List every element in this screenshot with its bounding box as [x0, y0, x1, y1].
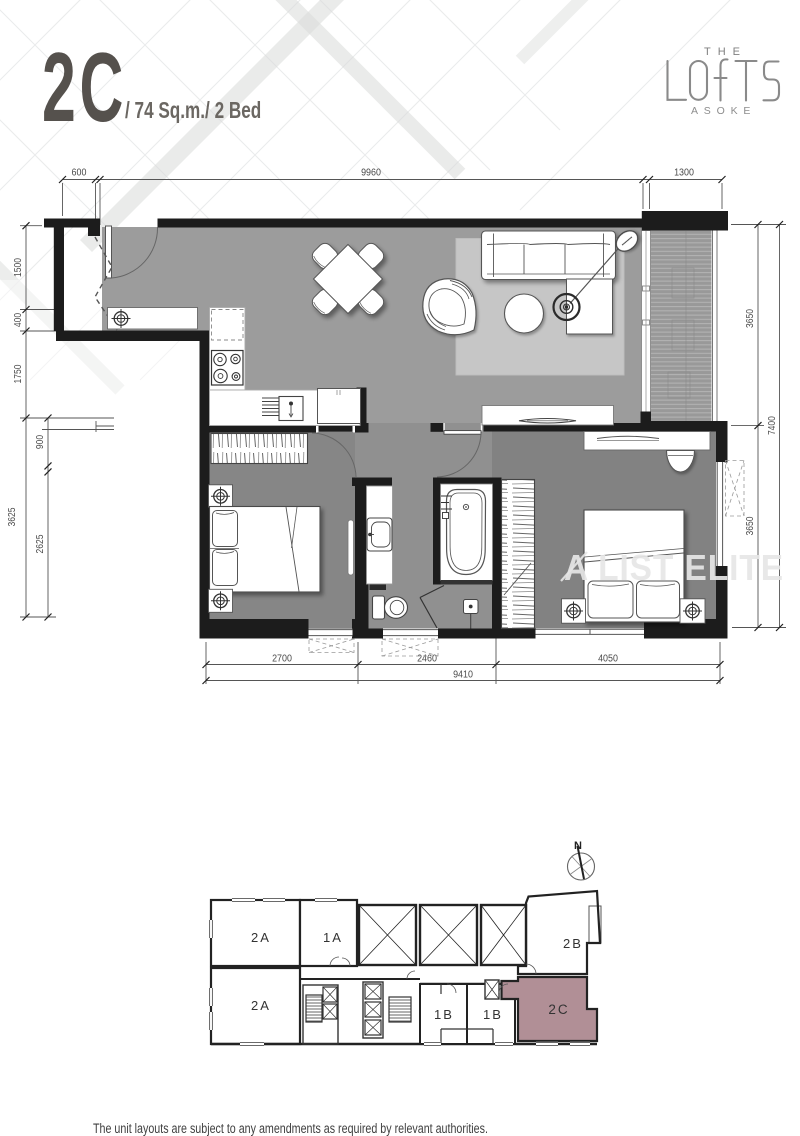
svg-text:2700: 2700 [272, 653, 292, 665]
svg-text:N: N [574, 840, 582, 852]
svg-text:A LIST ELITE: A LIST ELITE [564, 549, 784, 588]
svg-text:2B: 2B [563, 936, 583, 951]
svg-text:4050: 4050 [598, 653, 618, 665]
svg-text:1B: 1B [434, 1007, 454, 1022]
svg-text:1750: 1750 [12, 365, 23, 384]
svg-text:3625: 3625 [6, 508, 17, 527]
svg-text:9410: 9410 [453, 669, 473, 681]
svg-text:9960: 9960 [361, 167, 381, 179]
svg-text:/ 74 Sq.m./ 2 Bed: / 74 Sq.m./ 2 Bed [125, 97, 261, 123]
svg-text:2A: 2A [251, 998, 271, 1013]
svg-text:2625: 2625 [34, 535, 45, 554]
svg-text:2460: 2460 [417, 653, 437, 665]
svg-text:1B: 1B [483, 1007, 503, 1022]
svg-text:THE: THE [704, 46, 747, 58]
svg-text:400: 400 [12, 313, 23, 327]
svg-text:1500: 1500 [12, 258, 23, 277]
svg-text:2C: 2C [42, 33, 127, 142]
svg-text:1A: 1A [323, 930, 343, 945]
svg-text:3650: 3650 [744, 309, 755, 328]
svg-text:900: 900 [34, 435, 45, 449]
svg-text:7400: 7400 [766, 416, 777, 435]
svg-text:2A: 2A [251, 930, 271, 945]
svg-text:600: 600 [72, 167, 87, 179]
svg-text:ASOKE: ASOKE [691, 105, 756, 117]
svg-text:The unit layouts are subject t: The unit layouts are subject to any amen… [93, 1121, 488, 1136]
svg-text:1300: 1300 [674, 167, 694, 179]
svg-text:3650: 3650 [744, 517, 755, 536]
svg-text:2C: 2C [548, 1002, 569, 1017]
